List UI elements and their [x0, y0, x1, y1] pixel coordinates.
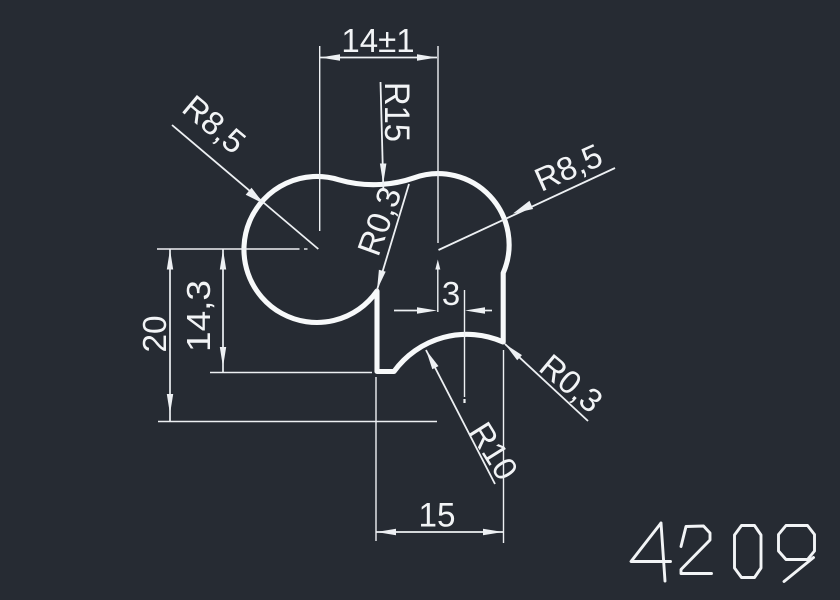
svg-text:14±1: 14±1	[341, 22, 414, 59]
svg-text:20: 20	[136, 316, 173, 353]
svg-text:15: 15	[419, 497, 456, 535]
svg-text:14,3: 14,3	[180, 280, 217, 352]
svg-text:3: 3	[442, 275, 460, 312]
svg-text:R15: R15	[377, 82, 416, 142]
